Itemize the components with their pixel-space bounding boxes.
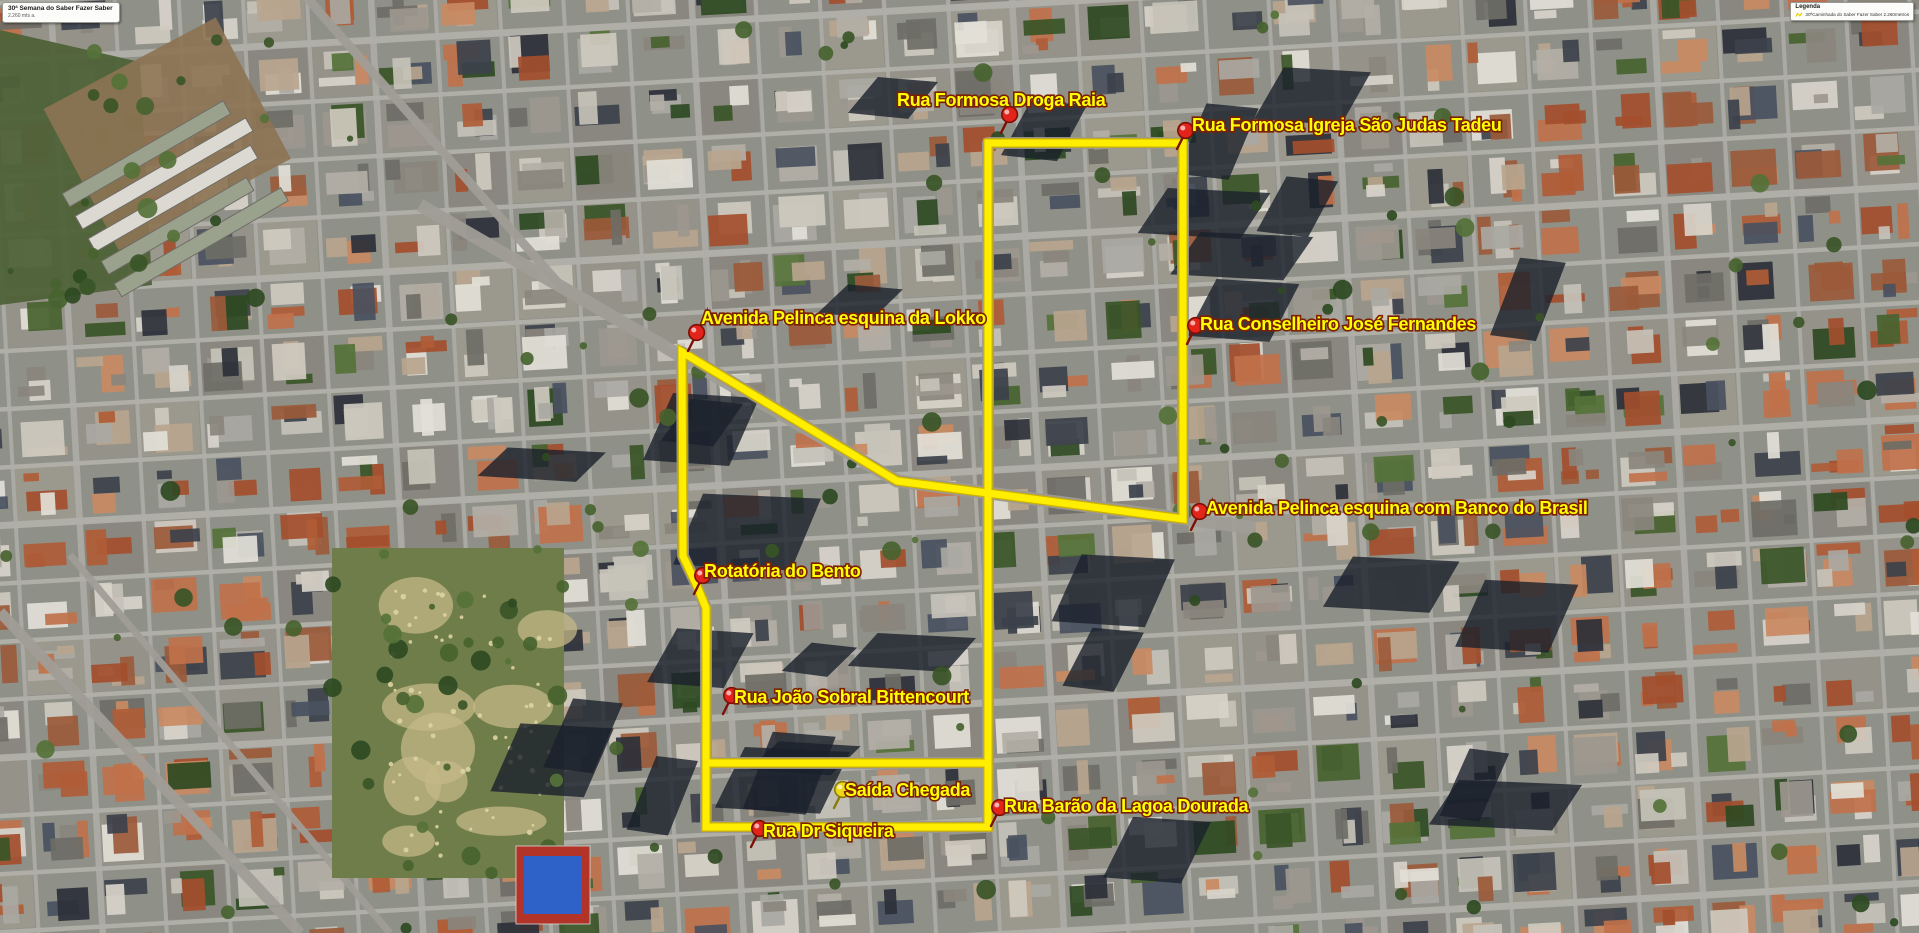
pin-label-rua-formosa-igreja-sao-judas[interactable]: Rua Formosa Igreja São Judas Tadeu (1192, 115, 1502, 135)
pin-label-rua-conselheiro-jose-fernandes[interactable]: Rua Conselheiro José Fernandes (1200, 314, 1476, 334)
legend-item-label: 30ªCaminhada do Saber Fazer Saber 2.260m… (1805, 12, 1909, 18)
pin-label-rua-joao-sobral-bittencourt[interactable]: Rua João Sobral Bittencourt (734, 687, 969, 707)
pin-label-saida-chegada[interactable]: Saída Chegada (845, 780, 971, 800)
map-title: 30ª Semana do Saber Fazer Saber (8, 5, 113, 13)
map-subtitle: 2.260 mts a. (8, 13, 113, 19)
pin-label-avenida-pelinca-banco-do-brasil[interactable]: Avenida Pelinca esquina com Banco do Bra… (1206, 498, 1588, 518)
pin-label-rua-formosa-droga-raia[interactable]: Rua Formosa Droga Raia (897, 90, 1107, 110)
legend: Legenda 30ªCaminhada do Saber Fazer Sabe… (1790, 2, 1914, 21)
legend-item: 30ªCaminhada do Saber Fazer Saber 2.260m… (1795, 12, 1909, 18)
pin-label-avenida-pelinca-lokko[interactable]: Avenida Pelinca esquina da Lokko (701, 308, 986, 328)
pin-label-rua-dr-siqueira[interactable]: Rua Dr Siqueira (763, 821, 895, 841)
route-line-icon (1795, 12, 1803, 18)
pin-label-rotatoria-do-bento[interactable]: Rotatória do Bento (704, 561, 861, 581)
pin-label-rua-barao-da-lagoa-dourada[interactable]: Rua Barão da Lagoa Dourada (1004, 796, 1250, 816)
map-canvas[interactable]: Rua Formosa Droga RaiaRua Formosa Igreja… (0, 0, 1919, 933)
map-title-overlay: 30ª Semana do Saber Fazer Saber 2.260 mt… (2, 2, 120, 23)
legend-title: Legenda (1795, 4, 1909, 11)
